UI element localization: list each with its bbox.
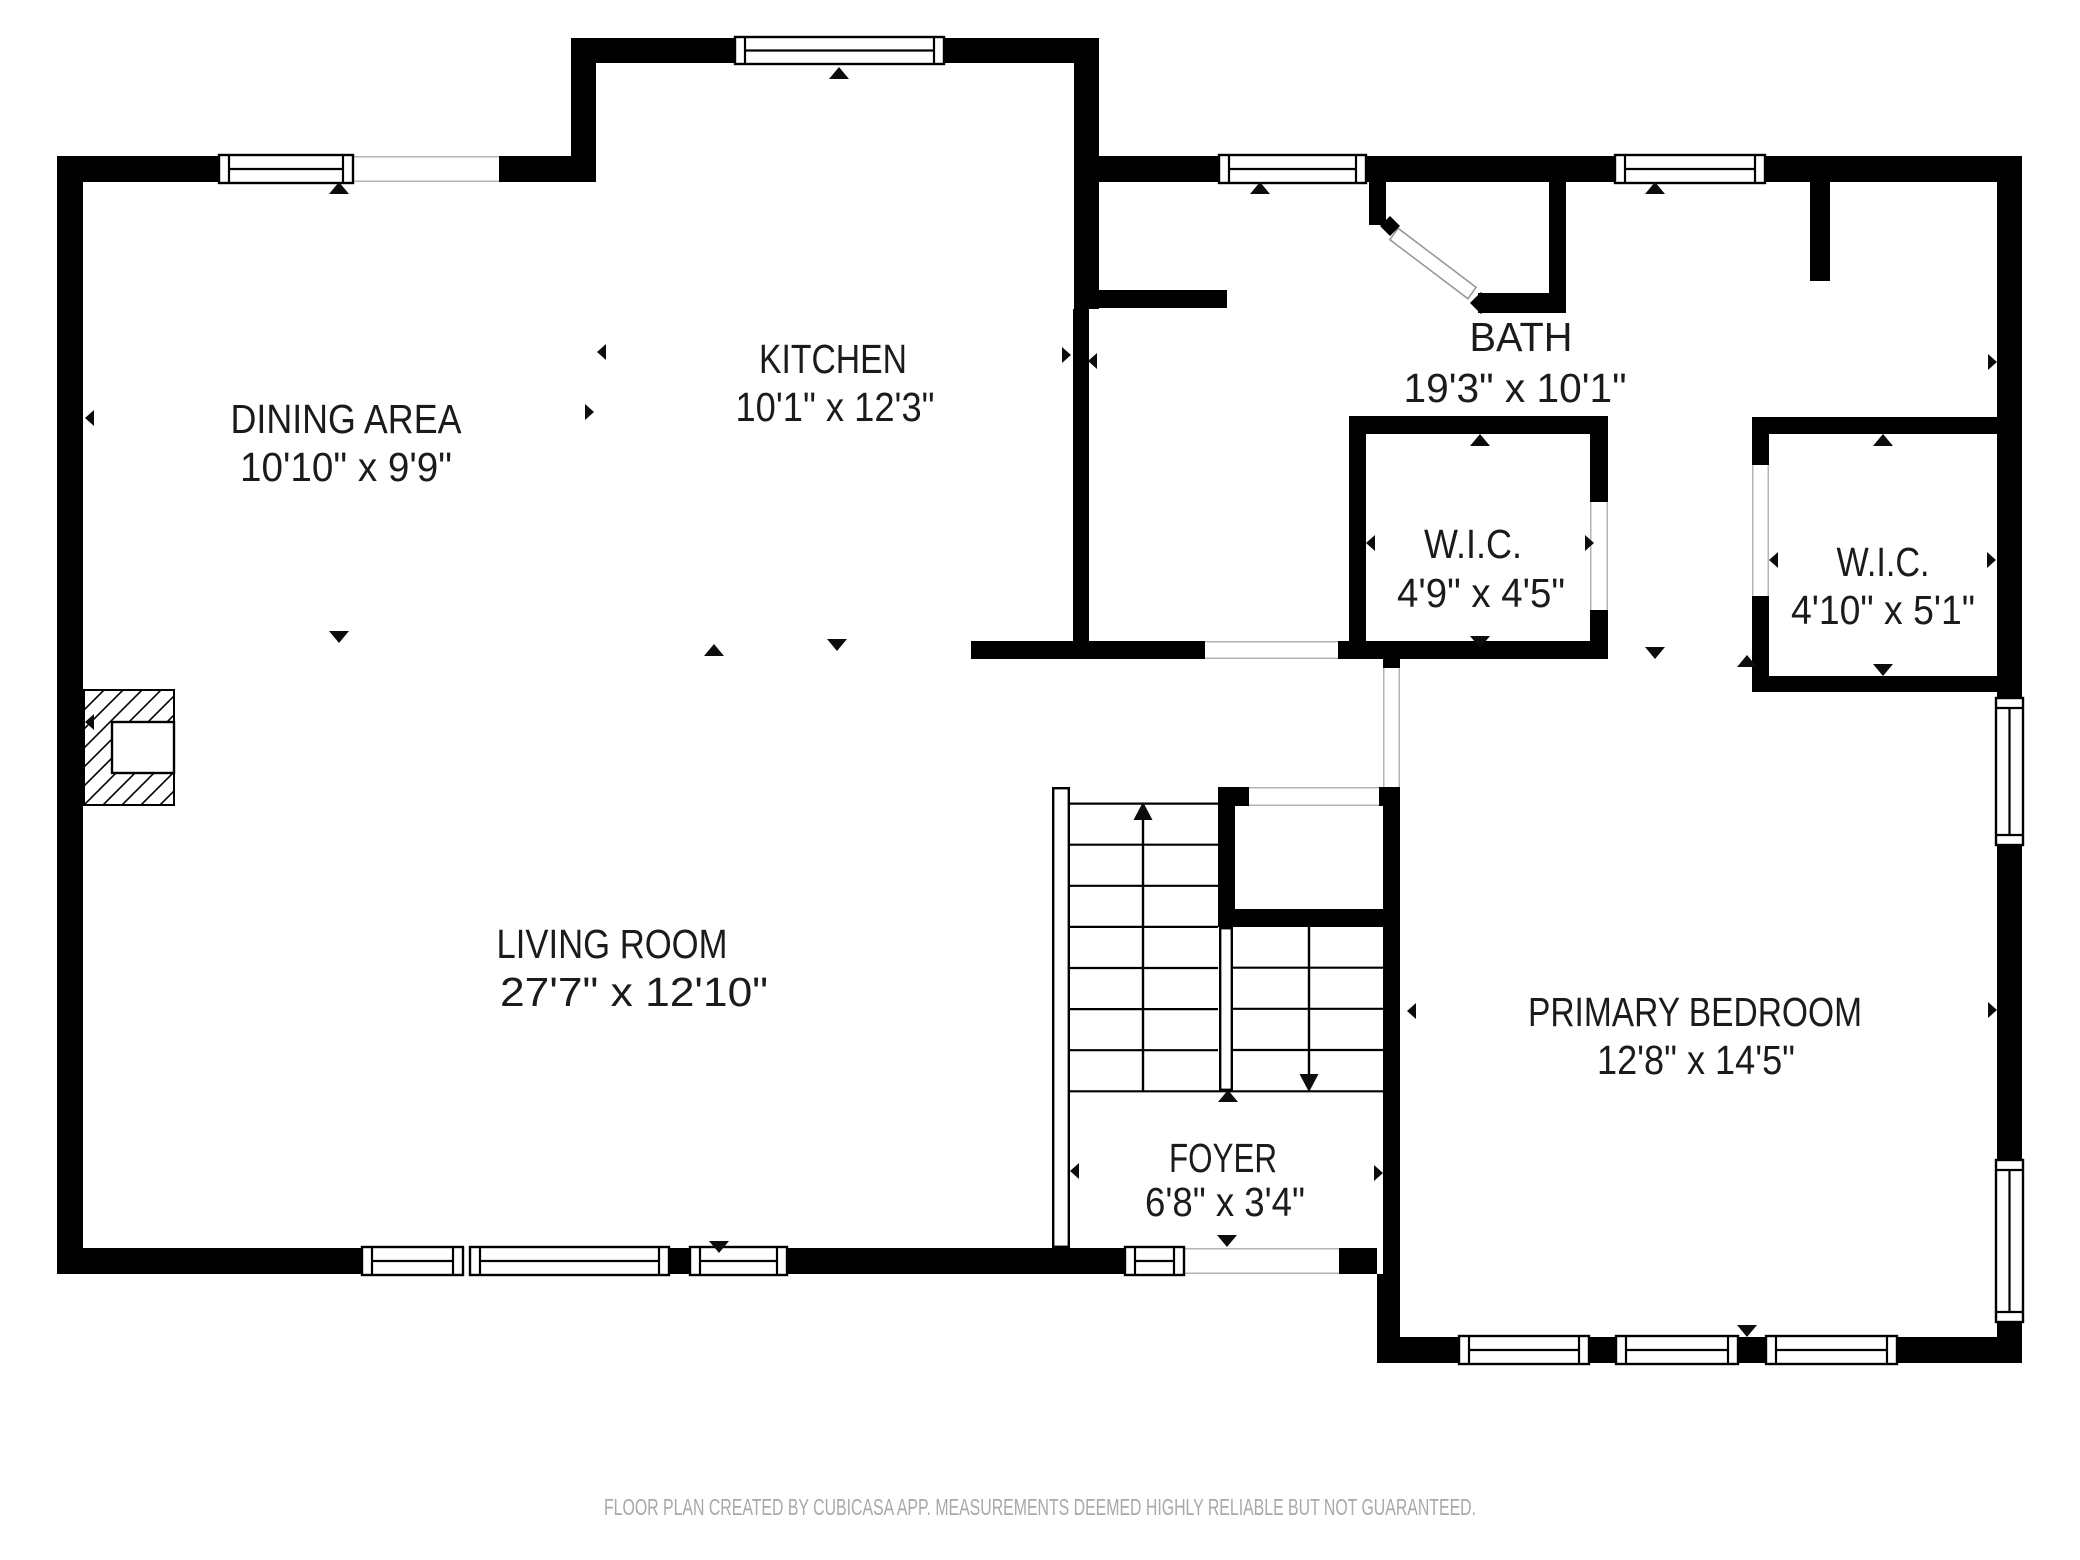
svg-text:27'7" x 12'10": 27'7" x 12'10" [500,969,768,1015]
svg-text:4'9" x 4'5": 4'9" x 4'5" [1397,570,1565,616]
svg-text:KITCHEN: KITCHEN [759,336,907,382]
svg-text:FLOOR PLAN CREATED BY CUBICASA: FLOOR PLAN CREATED BY CUBICASA APP. MEAS… [604,1494,1476,1520]
svg-text:19'3" x 10'1": 19'3" x 10'1" [1404,365,1627,411]
svg-text:BATH: BATH [1470,314,1573,360]
svg-text:10'10" x 9'9": 10'10" x 9'9" [240,444,452,490]
svg-text:FOYER: FOYER [1169,1135,1277,1181]
svg-text:PRIMARY BEDROOM: PRIMARY BEDROOM [1528,989,1862,1035]
svg-text:LIVING ROOM: LIVING ROOM [497,921,728,967]
svg-text:10'1" x 12'3": 10'1" x 12'3" [736,384,935,430]
svg-text:W.I.C.: W.I.C. [1837,539,1930,585]
svg-text:12'8" x 14'5": 12'8" x 14'5" [1597,1037,1795,1083]
svg-text:DINING AREA: DINING AREA [231,396,463,442]
svg-text:W.I.C.: W.I.C. [1424,521,1522,567]
svg-text:6'8" x 3'4": 6'8" x 3'4" [1145,1179,1305,1225]
svg-text:4'10" x 5'1": 4'10" x 5'1" [1791,587,1975,633]
